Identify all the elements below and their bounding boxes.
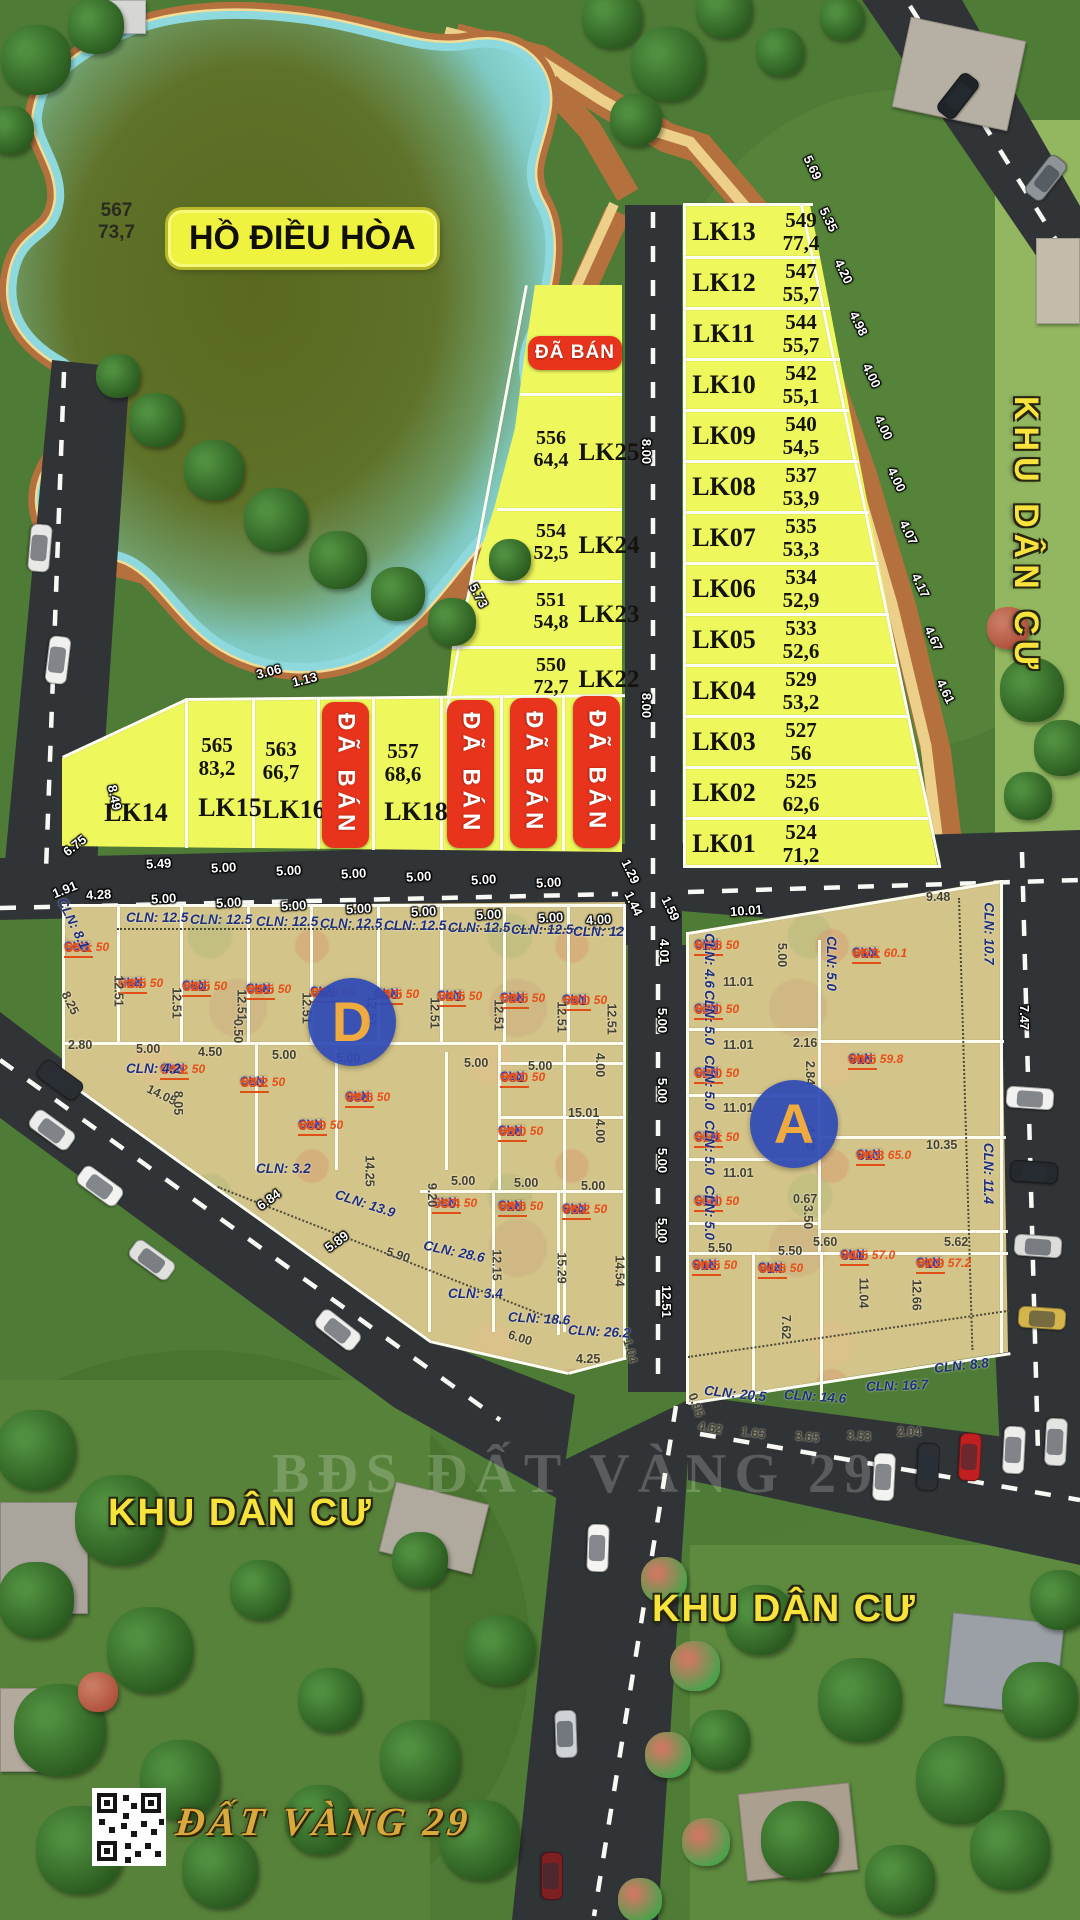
dimension-label: 5.00: [655, 1218, 670, 1243]
dimension-label: CLN: 12.5: [384, 918, 446, 933]
dimension-label: 4.00: [871, 413, 896, 442]
dimension-label: 5.73: [466, 581, 491, 610]
lk-plot-numbers: 547 55,7: [762, 260, 840, 305]
lk-plot-numbers: 540 54,5: [762, 413, 840, 458]
dimension-label: 6.00: [506, 1328, 533, 1349]
lk-plot-id: LK04: [688, 678, 760, 704]
dimension-label: 4.67: [921, 624, 946, 653]
dimension-label: 2.16: [793, 1036, 817, 1050]
dimension-label: 5.00: [341, 865, 367, 881]
lk-plot-id: LK09: [688, 423, 760, 449]
dimension-label: 4.07: [896, 518, 921, 547]
lk-plot-numbers: 524 71,2: [762, 821, 840, 866]
dimension-label: CLN: 12.5: [448, 920, 510, 935]
dimension-label: 15.29: [555, 1252, 569, 1283]
dimension-label: 11.04: [856, 1278, 870, 1309]
dimension-label: 4.62: [697, 1419, 723, 1437]
dimension-label: CLN: 3.2: [256, 1161, 311, 1176]
lk-plot-numbers: 551 54,8: [524, 590, 578, 633]
dimension-label: 5.00: [581, 1179, 605, 1193]
dimension-label: 8.00: [639, 439, 654, 464]
lk-plot-id: LK24: [576, 533, 642, 558]
dimension-label: 12.15: [490, 1249, 504, 1280]
dimension-label: 5.00: [216, 894, 242, 910]
sold-banner: ĐÃ BÁN: [447, 700, 494, 848]
dimension-label: 6.84: [254, 1186, 283, 1213]
dimension-label: 10.35: [926, 1138, 957, 1152]
dimension-label: CLN: 20.5: [703, 1383, 767, 1404]
dimension-label: CLN: 28.6: [422, 1238, 486, 1266]
dimension-label: 2.04: [897, 1425, 921, 1439]
dimension-label: 11.01: [723, 1038, 754, 1052]
block-d-badge: D: [308, 978, 396, 1066]
lk-plot-id: LK05: [688, 627, 760, 653]
dimension-label: CLN: 5.0: [702, 1120, 717, 1175]
dimension-label: 8.25: [59, 989, 82, 1017]
dimension-label: CLN: 10.7: [982, 902, 997, 964]
dimension-label: 5.00: [281, 897, 307, 913]
dimension-label: 12.51: [170, 987, 184, 1018]
dimension-label: 5.00: [655, 1078, 670, 1103]
dimension-label: 12.51: [428, 997, 442, 1028]
dimension-label: CLN: 12.5: [190, 912, 252, 927]
dimension-label: 5.00: [655, 1148, 670, 1173]
dimension-label: 1.44: [621, 889, 646, 918]
dimension-label: 1.13: [291, 669, 319, 690]
sold-banner-label: ĐÃ BÁN: [457, 712, 485, 835]
sold-banner: ĐÃ BÁN: [322, 702, 369, 848]
lk-plot-numbers: 557 68,6: [370, 740, 436, 785]
dimension-label: CLN: 13.9: [333, 1187, 397, 1221]
dimension-label: 5.00: [451, 1174, 475, 1188]
dimension-label: 1.29: [618, 857, 643, 886]
dimension-label: CLN: 18.6: [508, 1309, 571, 1327]
dimension-label: CLN: 26.2: [568, 1322, 631, 1340]
dimension-label: CLN: 12.5: [320, 916, 382, 931]
dimension-label: 7.47: [1017, 1005, 1032, 1030]
dimension-label: 4.25: [576, 1352, 600, 1366]
dimension-label: 4.00: [859, 361, 884, 390]
residential-label-bottom-right: KHU DÂN CƯ: [652, 1588, 917, 1631]
dimension-label: 5.00: [276, 862, 302, 878]
dimension-label: 4.28: [86, 886, 112, 902]
dimension-label: 12.51: [605, 1003, 619, 1034]
dimension-label: 4.01: [657, 939, 672, 964]
lk-plot-id: LK12: [688, 270, 760, 296]
lk-plot-numbers: 554 52,5: [524, 521, 578, 564]
dimension-label: 5.00: [536, 874, 562, 890]
dimension-label: CLN: 16.7: [866, 1377, 929, 1394]
dimension-label: CLN: 14.6: [784, 1387, 847, 1406]
lake-label: HỒ ĐIỀU HÒA: [168, 210, 437, 267]
lk-plot-numbers: 535 53,3: [762, 515, 840, 560]
dimension-label: 5.69: [800, 153, 825, 182]
lk-plot-numbers: 544 55,7: [762, 311, 840, 356]
dimension-label: 9.48: [926, 890, 950, 904]
dimension-label: 5.00: [471, 871, 497, 887]
lk-plot-id: LK13: [688, 219, 760, 245]
lk-plot-numbers: 534 52,9: [762, 566, 840, 611]
dimension-label: 3.50: [801, 1205, 815, 1229]
sold-banner: ĐÃ BÁN: [528, 336, 622, 370]
dimension-label: 5.50: [778, 1244, 802, 1258]
lk-plot-id: LK03: [688, 729, 760, 755]
lk-plot-id: LK08: [688, 474, 760, 500]
lk-plot-id: LK07: [688, 525, 760, 551]
dimension-label: 5.00: [346, 900, 372, 916]
lk-plot-numbers: 527 56: [762, 719, 840, 764]
dimension-label: 5.00: [136, 1042, 160, 1056]
lk-plot-id: LK10: [688, 372, 760, 398]
dimension-label: 5.00: [464, 1056, 488, 1070]
block-a-letter: A: [774, 1096, 814, 1152]
dimension-label: 5.00: [406, 868, 432, 884]
dimension-label: 11.01: [723, 1101, 754, 1115]
lk-plot-id: LK11: [688, 321, 760, 347]
lk-plot-id: LK25: [576, 440, 642, 465]
dimension-label: 4.00: [884, 465, 909, 494]
sold-banner: ĐÃ BÁN: [573, 696, 620, 848]
lk-plot-id: LK23: [576, 602, 642, 627]
qr-code: [92, 1788, 166, 1866]
dimension-label: CLN: 11.4: [981, 1143, 996, 1204]
dimension-label: 12.51: [235, 989, 249, 1020]
lk-plot-id: LK06: [688, 576, 760, 602]
dimension-label: 12.51: [492, 999, 506, 1030]
dimension-label: 5.00: [775, 943, 789, 967]
dimension-label: 2.80: [68, 1038, 92, 1052]
dimension-label: 5.00: [528, 1059, 552, 1073]
dimension-label: 3.06: [255, 661, 283, 682]
lk-plot-id: LK02: [688, 780, 760, 806]
dimension-label: 11.01: [723, 1166, 754, 1180]
sold-banner-label: ĐÃ BÁN: [332, 713, 360, 836]
block-d-letter: D: [332, 994, 372, 1050]
dimension-label: CLN: 12.5: [511, 922, 573, 937]
sold-banner-label: ĐÃ BÁN: [535, 342, 615, 364]
dimension-label: CLN: 12.5: [126, 910, 188, 925]
dimension-label: 5.00: [211, 859, 237, 875]
dimension-label: 5.00: [151, 890, 177, 906]
lk-plot-id: LK01: [688, 831, 760, 857]
dimension-label: CLN: 12.5: [256, 914, 318, 929]
sold-banner-label: ĐÃ BÁN: [520, 711, 548, 834]
land-plot-map: LK13549 77,4LK12547 55,7LK11544 55,7LK10…: [0, 0, 1080, 1920]
lk-plot-numbers: 537 53,9: [762, 464, 840, 509]
dimension-label: 8.00: [639, 693, 654, 718]
dimension-label: 0.50: [231, 1019, 245, 1043]
dimension-label: 5.50: [708, 1241, 732, 1255]
dimension-label: 4.17: [908, 571, 933, 600]
plot-labels: LK13549 77,4LK12547 55,7LK11544 55,7LK10…: [0, 0, 1080, 1920]
dimension-label: 12.51: [659, 1285, 674, 1318]
lk-plot-numbers: 556 64,4: [524, 428, 578, 471]
dimension-label: CLN: 5.0: [702, 1185, 717, 1240]
dimension-label: 4.98: [846, 309, 871, 338]
residential-label-right: KHU DÂN CƯ: [1006, 396, 1045, 675]
dimension-label: 14.25: [363, 1155, 377, 1186]
dimension-label: 5.00: [514, 1176, 538, 1190]
lk-plot-numbers: 533 52,6: [762, 617, 840, 662]
dimension-label: 5.49: [146, 855, 172, 871]
lk-plot-id: LK22: [576, 667, 642, 692]
dimension-label: CLN: 4.2: [126, 1061, 181, 1076]
dimension-label: 5.00: [272, 1048, 296, 1062]
dimension-label: CLN: 5.0: [702, 990, 717, 1045]
lk-plot-numbers: 525 62,6: [762, 770, 840, 815]
lk-plot-numbers: 565 83,2: [184, 734, 250, 779]
dimension-label: 4.00: [593, 1119, 607, 1143]
watermark-center: BĐS ĐẤT VÀNG 29: [272, 1442, 880, 1506]
dimension-label: 5.90: [384, 1245, 411, 1266]
dimension-label: 1.04: [620, 1337, 640, 1364]
dimension-label: 4.50: [198, 1045, 222, 1059]
dimension-label: CLN: 5.0: [702, 1055, 717, 1110]
lk-plot-numbers: 550 72,7: [524, 655, 578, 698]
sold-banner-label: ĐÃ BÁN: [583, 710, 611, 833]
lk-plot-id: LK14: [88, 800, 184, 826]
dimension-label: CLN: 4.6: [702, 933, 717, 988]
dimension-label: CLN: 8.8: [933, 1355, 989, 1376]
dimension-label: 14.54: [613, 1255, 627, 1286]
dimension-label: 1.65: [740, 1424, 766, 1441]
dimension-label: 1.59: [658, 894, 683, 923]
dimension-label: CLN: 3.4: [448, 1286, 503, 1301]
dimension-label: 12.51: [555, 1001, 569, 1032]
dimension-label: 7.62: [779, 1315, 793, 1339]
dimension-label: 5.60: [813, 1235, 837, 1249]
dimension-label: 5.89: [322, 1228, 351, 1255]
dimension-label: 6.75: [60, 832, 89, 859]
sold-banner: ĐÃ BÁN: [510, 698, 557, 848]
dimension-label: 4.61: [933, 677, 958, 706]
lk-plot-numbers: 563 66,7: [248, 738, 314, 783]
lake-parcel-number: 567 73,7: [98, 200, 135, 244]
block-a-badge: A: [750, 1080, 838, 1168]
watermark-brand: ĐẤT VÀNG 29: [174, 1798, 474, 1845]
dimension-label: 5.62: [944, 1235, 968, 1249]
dimension-label: 10.01: [730, 902, 764, 919]
lk-plot-numbers: 529 53,2: [762, 668, 840, 713]
dimension-label: 4.00: [593, 1053, 607, 1077]
dimension-label: CLN: 12: [573, 924, 624, 939]
dimension-label: 12.66: [910, 1279, 924, 1310]
dimension-label: 11.01: [723, 975, 754, 989]
dimension-label: 9.20: [425, 1183, 439, 1207]
lk-plot-numbers: 542 55,1: [762, 362, 840, 407]
dimension-label: 5.00: [655, 1008, 670, 1033]
dimension-label: 8.05: [171, 1091, 185, 1115]
dimension-label: CLN: 5.0: [824, 936, 839, 991]
dimension-label: 12.51: [112, 975, 126, 1006]
